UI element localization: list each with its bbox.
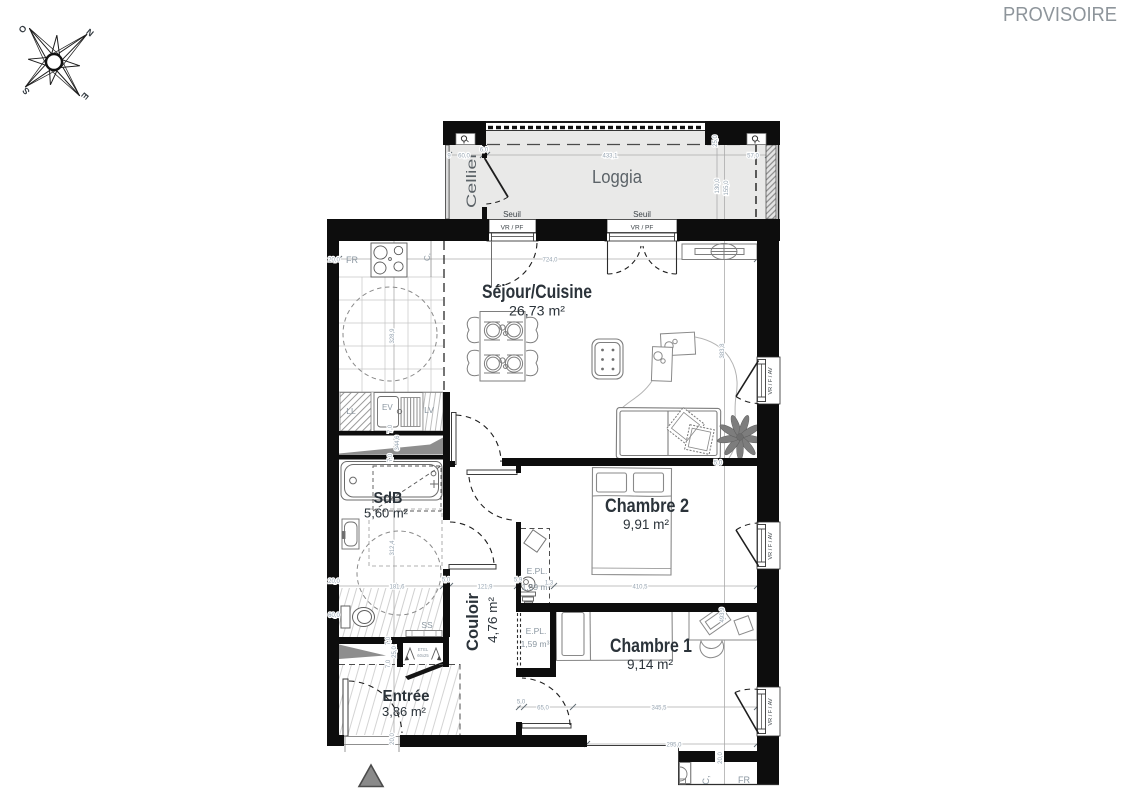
svg-text:Cellier: Cellier bbox=[464, 151, 479, 208]
svg-text:20,0: 20,0 bbox=[718, 752, 724, 764]
svg-text:312,4: 312,4 bbox=[390, 540, 396, 556]
svg-text:VR / PF: VR / PF bbox=[501, 225, 524, 232]
svg-text:Chambre 2: Chambre 2 bbox=[605, 496, 689, 517]
svg-text:Loggia: Loggia bbox=[592, 166, 643, 187]
svg-text:65,0: 65,0 bbox=[537, 706, 549, 712]
svg-text:Séjour/Cuisine: Séjour/Cuisine bbox=[482, 282, 592, 303]
svg-text:3,86 m²: 3,86 m² bbox=[382, 705, 426, 719]
svg-text:25,0: 25,0 bbox=[392, 646, 398, 658]
svg-text:1,59 m³: 1,59 m³ bbox=[521, 639, 550, 649]
svg-text:6,0: 6,0 bbox=[480, 148, 489, 154]
svg-text:Seuil: Seuil bbox=[633, 210, 651, 219]
svg-text:5,60 m²: 5,60 m² bbox=[364, 507, 408, 521]
svg-text:493,9: 493,9 bbox=[720, 607, 726, 623]
svg-text:7,0: 7,0 bbox=[388, 424, 394, 433]
svg-text:C,: C, bbox=[423, 253, 432, 261]
svg-text:Chambre 1: Chambre 1 bbox=[610, 636, 692, 657]
svg-text:VR / F / AV: VR / F / AV bbox=[768, 698, 774, 726]
svg-text:60,0: 60,0 bbox=[328, 613, 340, 619]
svg-text:LL: LL bbox=[346, 406, 356, 416]
svg-text:VR / F / AV: VR / F / AV bbox=[768, 532, 774, 560]
svg-text:C,: C, bbox=[701, 776, 711, 785]
svg-text:57,0: 57,0 bbox=[747, 154, 759, 160]
svg-text:433,1: 433,1 bbox=[602, 154, 618, 160]
svg-text:7,0: 7,0 bbox=[386, 636, 392, 645]
svg-text:130,0: 130,0 bbox=[715, 178, 721, 194]
svg-text:26,73 m²: 26,73 m² bbox=[509, 304, 566, 319]
svg-text:5,9: 5,9 bbox=[514, 578, 523, 584]
svg-text:EV: EV bbox=[382, 403, 393, 412]
svg-text:E.PL.: E.PL. bbox=[526, 626, 547, 636]
svg-text:25,0: 25,0 bbox=[713, 135, 719, 147]
svg-text:5,0: 5,0 bbox=[517, 700, 526, 706]
svg-text:60,0: 60,0 bbox=[458, 154, 470, 160]
svg-text:FR: FR bbox=[738, 775, 750, 785]
svg-text:VR / F / AV: VR / F / AV bbox=[768, 367, 774, 395]
svg-text:FR: FR bbox=[346, 255, 358, 265]
svg-text:20,0: 20,0 bbox=[328, 258, 340, 264]
svg-text:60x25: 60x25 bbox=[417, 653, 429, 658]
svg-text:121,9: 121,9 bbox=[477, 585, 493, 591]
svg-text:4,76 m²: 4,76 m² bbox=[486, 597, 500, 643]
svg-text:328,9: 328,9 bbox=[390, 328, 396, 344]
svg-text:7,0: 7,0 bbox=[386, 659, 392, 668]
svg-text:5,0: 5,0 bbox=[442, 578, 451, 584]
svg-text:SS: SS bbox=[421, 620, 433, 630]
svg-text:20,0: 20,0 bbox=[328, 579, 340, 585]
svg-text:344,6: 344,6 bbox=[395, 435, 401, 451]
svg-text:Couloir: Couloir bbox=[464, 592, 482, 651]
svg-text:724,0: 724,0 bbox=[542, 258, 558, 264]
svg-text:181,6: 181,6 bbox=[389, 585, 405, 591]
svg-text:20,0: 20,0 bbox=[390, 733, 396, 745]
svg-text:PROVISOIRE: PROVISOIRE bbox=[1003, 4, 1117, 26]
svg-text:9,91 m²: 9,91 m² bbox=[623, 517, 669, 532]
svg-text:E.PL.: E.PL. bbox=[527, 566, 548, 576]
svg-text:ETEL: ETEL bbox=[418, 647, 429, 652]
svg-text:VR / PF: VR / PF bbox=[631, 225, 654, 232]
svg-text:410,5: 410,5 bbox=[632, 585, 648, 591]
svg-text:295,0: 295,0 bbox=[666, 743, 682, 749]
svg-text:9,14 m²: 9,14 m² bbox=[627, 657, 673, 672]
svg-text:345,5: 345,5 bbox=[651, 706, 667, 712]
svg-text:383,8: 383,8 bbox=[720, 343, 726, 359]
svg-text:Entrée: Entrée bbox=[383, 688, 430, 705]
svg-text:155,0: 155,0 bbox=[724, 180, 730, 196]
svg-text:Seuil: Seuil bbox=[503, 210, 521, 219]
svg-text:1,3: 1,3 bbox=[545, 581, 554, 587]
svg-text:SdB: SdB bbox=[374, 490, 403, 507]
svg-text:7,0: 7,0 bbox=[388, 453, 394, 462]
svg-text:LV: LV bbox=[424, 405, 434, 415]
svg-text:5,0: 5,0 bbox=[714, 461, 723, 467]
